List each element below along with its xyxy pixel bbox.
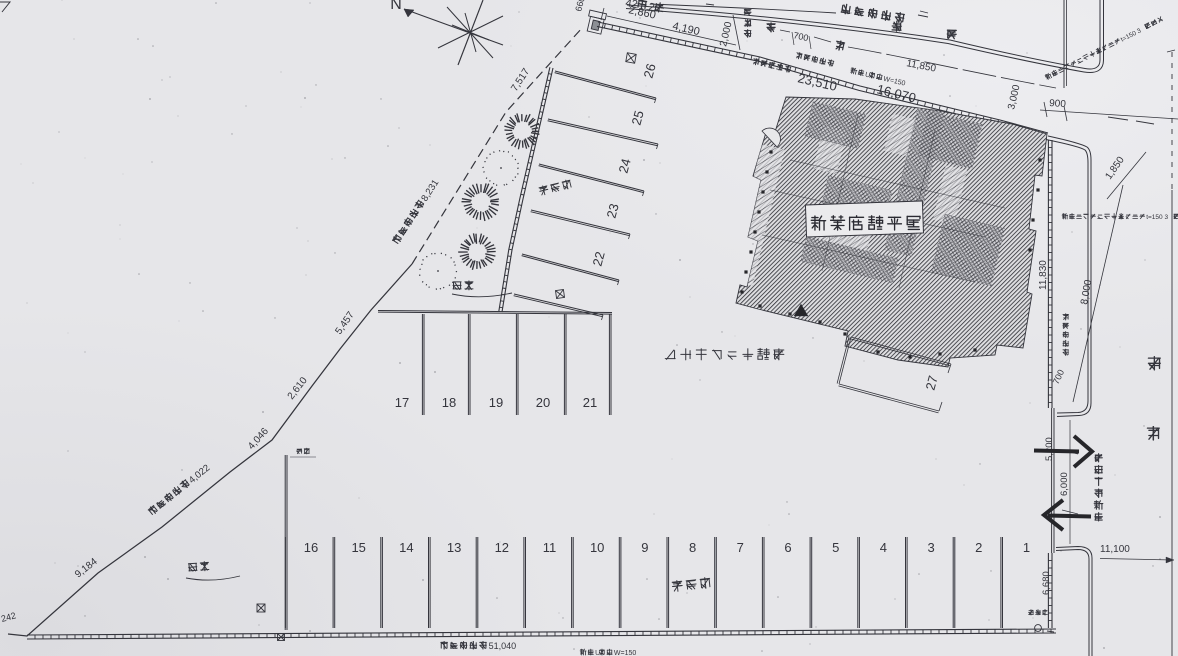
svg-text:6,000: 6,000 [1059, 472, 1070, 496]
svg-text:11,830: 11,830 [1038, 260, 1049, 290]
svg-text:9: 9 [641, 540, 648, 555]
svg-text:51,040: 51,040 [489, 641, 517, 651]
svg-text:20: 20 [536, 395, 550, 410]
svg-text:4,022: 4,022 [187, 463, 212, 487]
svg-text:24: 24 [616, 157, 634, 175]
svg-text:W=150: W=150 [614, 650, 636, 656]
svg-text:8: 8 [689, 540, 696, 555]
svg-text:N: N [390, 0, 402, 13]
svg-text:11,850: 11,850 [905, 58, 937, 75]
svg-text:26: 26 [641, 62, 659, 80]
svg-text:t=150 3: t=150 3 [1146, 214, 1168, 221]
svg-text:23: 23 [604, 202, 622, 220]
svg-text:8,231: 8,231 [419, 178, 441, 204]
svg-text:16,070: 16,070 [875, 81, 917, 105]
svg-text:700: 700 [793, 30, 810, 43]
svg-text:1: 1 [1023, 540, 1030, 555]
svg-text:3,000: 3,000 [1006, 83, 1022, 110]
svg-text:6: 6 [784, 540, 791, 555]
svg-text:4,190: 4,190 [671, 20, 701, 38]
svg-text:10: 10 [590, 540, 604, 555]
svg-text:2,000: 2,000 [718, 20, 734, 47]
svg-text:5: 5 [832, 540, 839, 555]
svg-text:1,850: 1,850 [1103, 155, 1127, 182]
svg-text:6,680: 6,680 [1041, 571, 1052, 595]
svg-text:25: 25 [629, 109, 647, 127]
svg-text:900: 900 [1049, 98, 1067, 110]
svg-text:7: 7 [737, 540, 744, 555]
svg-text:22: 22 [590, 250, 608, 268]
svg-text:21: 21 [583, 395, 597, 410]
svg-text:27: 27 [923, 374, 941, 392]
svg-text:16: 16 [304, 540, 318, 555]
svg-text:7,517: 7,517 [509, 66, 532, 93]
svg-text:11: 11 [543, 540, 557, 555]
svg-text:8,000: 8,000 [1079, 279, 1094, 306]
svg-text:t=150 3: t=150 3 [1120, 27, 1143, 43]
svg-text:U: U [595, 650, 600, 656]
svg-text:2: 2 [975, 540, 982, 555]
svg-text:4: 4 [880, 540, 887, 555]
svg-text:11,100: 11,100 [1100, 544, 1130, 555]
svg-text:13: 13 [447, 540, 461, 555]
svg-text:12: 12 [495, 540, 509, 555]
svg-text:18: 18 [442, 395, 456, 410]
svg-text:9,184: 9,184 [73, 556, 100, 580]
svg-text:42: 42 [624, 0, 638, 11]
svg-text:660: 660 [573, 0, 587, 13]
svg-text:242: 242 [0, 610, 17, 624]
svg-text:700: 700 [1051, 368, 1066, 386]
svg-text:14: 14 [399, 540, 413, 555]
svg-text:23,510: 23,510 [796, 70, 838, 94]
svg-text:2,610: 2,610 [286, 375, 310, 402]
svg-text:3: 3 [927, 540, 934, 555]
svg-text:17: 17 [395, 395, 409, 410]
svg-text:15: 15 [351, 540, 365, 555]
svg-text:19: 19 [489, 395, 503, 410]
svg-text:4,046: 4,046 [246, 426, 271, 452]
